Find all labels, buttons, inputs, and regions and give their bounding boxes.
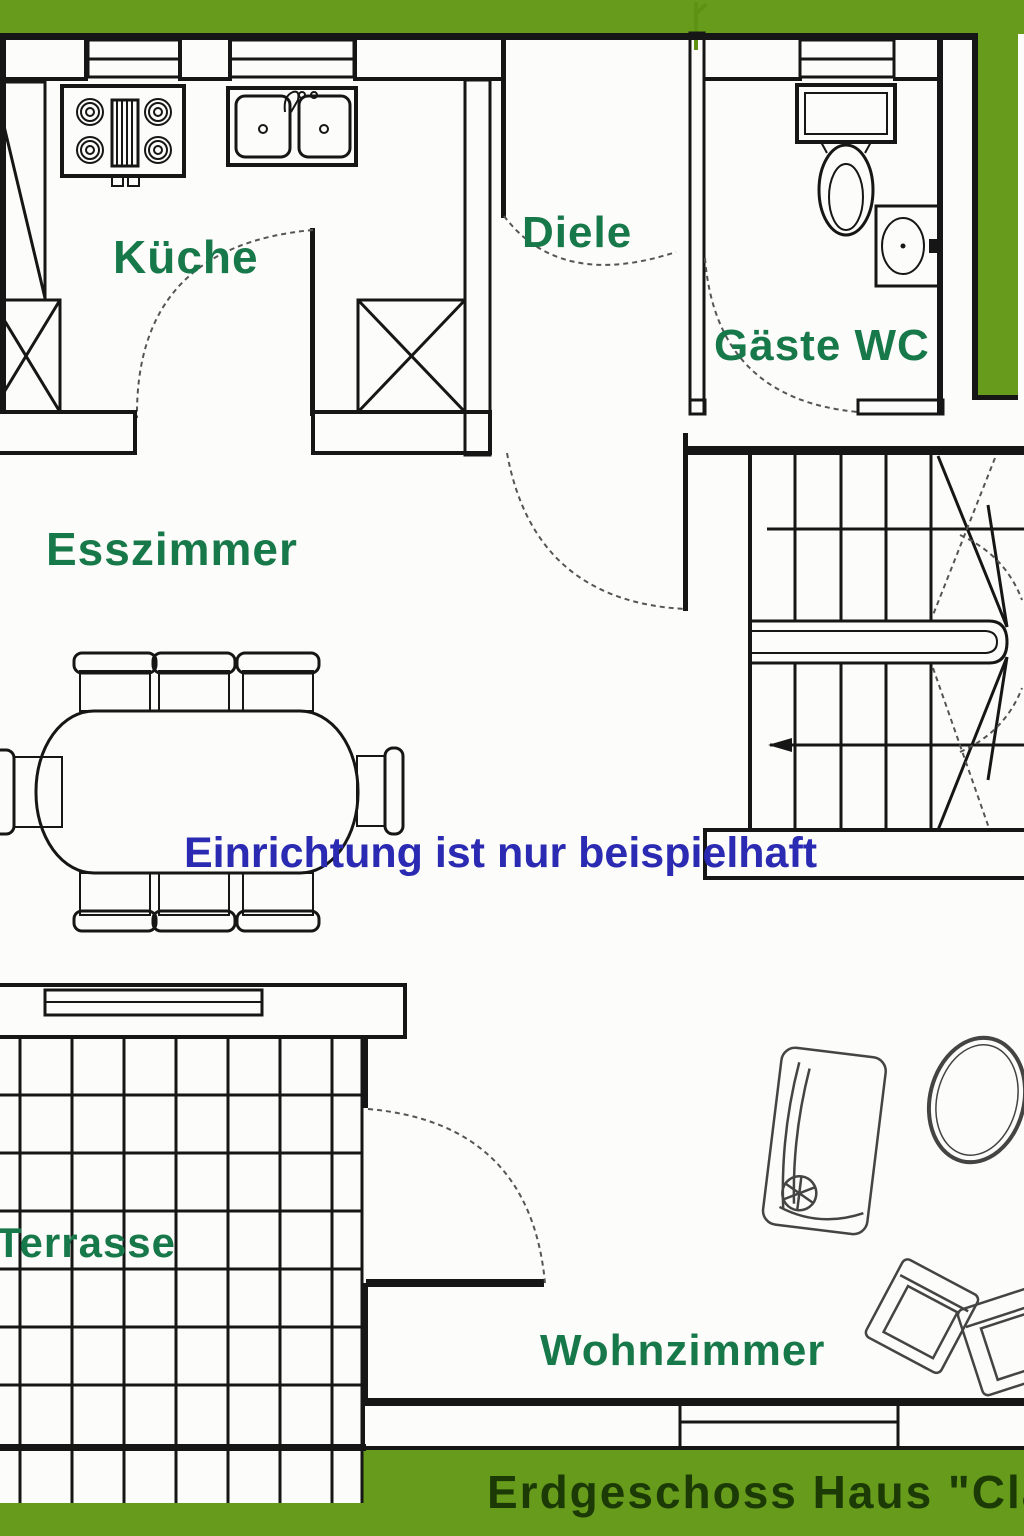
dining-top-wall-left xyxy=(0,412,135,453)
kitchen-right-wall xyxy=(465,80,490,455)
green-border-top xyxy=(0,0,1024,34)
dining-table-group xyxy=(0,653,403,931)
terrace-bottom-wall-line xyxy=(0,1444,366,1451)
room-label-diele: Diele xyxy=(522,208,632,257)
room-label-gaestewc: Gäste WC xyxy=(714,321,930,370)
wc-left-wall xyxy=(690,33,704,414)
floor-plan-svg: Küche Diele Gäste WC Esszimmer Terrasse … xyxy=(0,0,1024,1536)
floor-plan-page: Küche Diele Gäste WC Esszimmer Terrasse … xyxy=(0,0,1024,1536)
staircase xyxy=(688,446,1024,878)
room-label-esszimmer: Esszimmer xyxy=(46,523,298,575)
sofa xyxy=(761,1046,887,1235)
plan-title: Erdgeschoss Haus "Cla xyxy=(487,1466,1024,1518)
dining-door xyxy=(507,433,688,611)
room-label-terrasse: Terrasse xyxy=(0,1219,176,1266)
terrace-tile-grid xyxy=(0,1037,363,1503)
tall-cabinet xyxy=(0,82,45,300)
green-border-right xyxy=(978,34,1018,398)
stove xyxy=(62,86,184,186)
stair-direction-arrow xyxy=(768,738,792,752)
double-sink xyxy=(228,88,356,165)
furnishing-note: Einrichtung ist nur beispielhaft xyxy=(184,829,817,877)
room-label-kueche: Küche xyxy=(113,231,259,283)
stairwell-railing xyxy=(752,621,1007,663)
living-bottom-wall xyxy=(363,1400,1024,1448)
corner-washbasin xyxy=(876,206,940,286)
x-cabinet-left xyxy=(0,300,60,412)
armchair-1 xyxy=(864,1257,980,1375)
x-cabinet-right xyxy=(358,300,465,412)
room-label-wohnzimmer: Wohnzimmer xyxy=(540,1326,825,1375)
green-border-right-bottom-line xyxy=(972,395,1018,400)
toilet xyxy=(797,85,895,235)
wc-bottom-wall xyxy=(690,400,943,414)
top-wall-windows xyxy=(88,40,894,77)
oval-table xyxy=(916,1028,1024,1173)
green-border-bottom-left xyxy=(0,1503,363,1536)
dining-bottom-wall xyxy=(0,985,405,1037)
dining-top-wall-right xyxy=(313,412,490,453)
armchair-2 xyxy=(956,1283,1024,1396)
plan-right-boundary-line xyxy=(972,34,978,398)
terrace-door xyxy=(366,1109,545,1287)
kitchen-left-wall xyxy=(0,33,6,413)
